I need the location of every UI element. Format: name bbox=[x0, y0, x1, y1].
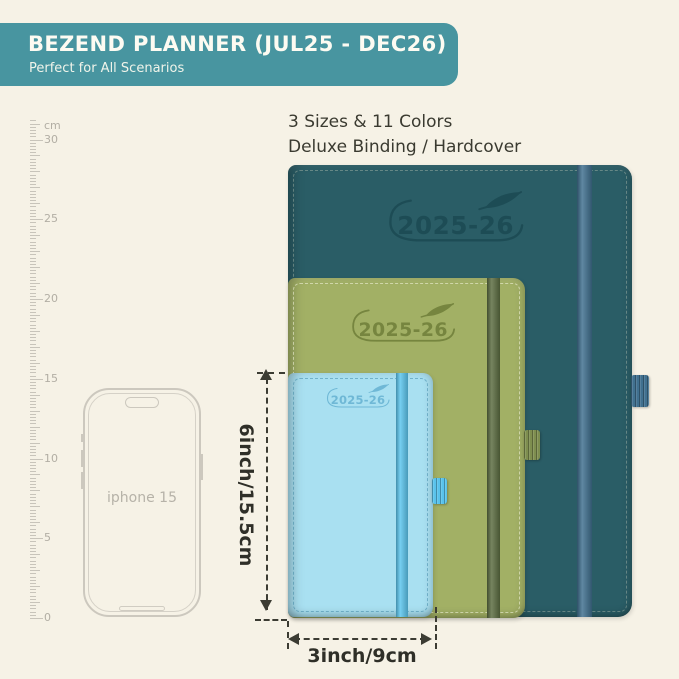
height-dimension-label: 6inch/15.5cm bbox=[235, 424, 257, 567]
ruler-tick bbox=[30, 506, 40, 507]
ruler-tick bbox=[30, 446, 36, 447]
ruler-tick bbox=[30, 602, 40, 603]
ruler-tick bbox=[30, 159, 36, 160]
ruler-tick bbox=[30, 130, 36, 131]
ruler-tick bbox=[30, 353, 36, 354]
ruler-tick bbox=[30, 222, 36, 223]
ruler-tick bbox=[30, 599, 36, 600]
ruler-tick bbox=[30, 226, 36, 227]
elastic-band bbox=[577, 165, 592, 617]
ruler-tick bbox=[30, 133, 36, 134]
ruler-label: 20 bbox=[44, 292, 58, 305]
home-indicator-icon bbox=[119, 606, 165, 611]
year-logo: 2025-26 bbox=[385, 191, 535, 247]
ruler-tick bbox=[30, 235, 40, 236]
ruler-tick bbox=[30, 206, 36, 207]
ruler-tick bbox=[30, 557, 36, 558]
ruler-tick bbox=[30, 580, 36, 581]
ruler-tick bbox=[30, 363, 40, 364]
ruler-tick bbox=[30, 605, 36, 606]
ruler-tick bbox=[30, 194, 36, 195]
ruler-tick bbox=[30, 392, 36, 393]
ruler-tick bbox=[30, 430, 36, 431]
ruler-tick bbox=[30, 254, 36, 255]
ruler-tick bbox=[30, 315, 40, 316]
ruler-tick bbox=[30, 618, 43, 619]
ruler-tick bbox=[30, 548, 36, 549]
ruler-tick bbox=[30, 500, 36, 501]
ruler-tick bbox=[30, 219, 43, 220]
arrow-left-icon bbox=[288, 633, 299, 645]
width-guide-right bbox=[435, 607, 437, 649]
ruler-label: 25 bbox=[44, 212, 58, 225]
ruler-label: 30 bbox=[44, 133, 58, 146]
ruler-tick bbox=[30, 615, 36, 616]
ruler-tick bbox=[30, 302, 36, 303]
ruler-tick bbox=[30, 337, 36, 338]
power-button-icon bbox=[201, 454, 203, 480]
ruler-tick bbox=[30, 321, 36, 322]
product-image: BEZEND PLANNER (JUL25 - DEC26) Perfect f… bbox=[0, 0, 679, 679]
ruler-tick bbox=[30, 251, 40, 252]
ruler-tick bbox=[30, 178, 36, 179]
ruler-tick bbox=[30, 420, 36, 421]
ruler-tick bbox=[30, 328, 36, 329]
ruler-tick bbox=[30, 210, 36, 211]
ruler-unit-label: cm bbox=[44, 119, 61, 132]
ruler-tick bbox=[30, 554, 40, 555]
ruler-tick bbox=[30, 583, 36, 584]
ruler-tick bbox=[30, 331, 40, 332]
ruler-tick bbox=[30, 497, 36, 498]
ruler-tick bbox=[30, 296, 36, 297]
year-text: 2025-26 bbox=[331, 393, 386, 407]
year-logo: 2025-26 bbox=[349, 303, 464, 346]
volume-up-button-icon bbox=[81, 450, 83, 467]
ruler-tick bbox=[30, 273, 36, 274]
ruler-tick bbox=[30, 564, 36, 565]
volume-down-button-icon bbox=[81, 472, 83, 489]
ruler-tick bbox=[30, 439, 36, 440]
iphone-outline: iphone 15 bbox=[83, 388, 201, 617]
ruler-tick bbox=[30, 612, 36, 613]
ruler-tick bbox=[30, 245, 36, 246]
ruler-tick bbox=[30, 181, 36, 182]
pen-loop bbox=[524, 430, 540, 460]
ruler-tick bbox=[30, 519, 36, 520]
ruler-tick bbox=[30, 398, 36, 399]
banner-title: BEZEND PLANNER (JUL25 - DEC26) bbox=[28, 32, 447, 56]
ruler-tick bbox=[30, 436, 36, 437]
ruler-tick bbox=[30, 407, 36, 408]
width-dimension-line bbox=[294, 638, 426, 640]
ruler-tick bbox=[30, 140, 43, 141]
ruler-tick bbox=[30, 318, 36, 319]
ruler-tick bbox=[30, 165, 36, 166]
ruler-tick bbox=[30, 596, 36, 597]
ruler-tick bbox=[30, 168, 36, 169]
ruler-tick bbox=[30, 459, 43, 460]
ruler-tick bbox=[30, 570, 40, 571]
ruler-tick bbox=[30, 592, 36, 593]
ruler-tick bbox=[30, 468, 36, 469]
ruler-tick bbox=[30, 541, 36, 542]
dynamic-island-icon bbox=[125, 397, 159, 408]
ruler-tick bbox=[30, 589, 36, 590]
ruler-tick bbox=[30, 242, 36, 243]
width-dimension-label: 3inch/9cm bbox=[288, 645, 436, 667]
ruler-tick bbox=[30, 522, 40, 523]
ruler-tick bbox=[30, 567, 36, 568]
ruler-tick bbox=[30, 427, 40, 428]
ruler-tick bbox=[30, 293, 36, 294]
year-logo: 2025-26 bbox=[325, 384, 395, 410]
ruler: cm 302520151050 bbox=[0, 0, 70, 679]
ruler-tick bbox=[30, 312, 36, 313]
ruler-tick bbox=[30, 143, 36, 144]
year-text: 2025-26 bbox=[358, 319, 448, 341]
ruler-tick bbox=[30, 136, 36, 137]
ruler-tick bbox=[30, 452, 36, 453]
ruler-tick bbox=[30, 356, 36, 357]
ruler-tick bbox=[30, 484, 36, 485]
arrow-up-icon bbox=[260, 369, 272, 380]
ruler-tick bbox=[30, 184, 36, 185]
ruler-tick bbox=[30, 152, 36, 153]
ruler-tick bbox=[30, 481, 36, 482]
ruler-tick bbox=[30, 433, 36, 434]
ruler-tick bbox=[30, 561, 36, 562]
ruler-tick bbox=[30, 229, 36, 230]
iphone-label: iphone 15 bbox=[85, 490, 199, 506]
ruler-tick bbox=[30, 490, 40, 491]
ruler-tick bbox=[30, 213, 36, 214]
intro-text: 3 Sizes & 11 Colors Deluxe Binding / Har… bbox=[288, 110, 521, 160]
ruler-tick bbox=[30, 423, 36, 424]
ruler-tick bbox=[30, 414, 36, 415]
ruler-tick bbox=[30, 238, 36, 239]
ruler-tick bbox=[30, 449, 36, 450]
height-dimension-line bbox=[266, 378, 268, 610]
ruler-tick bbox=[30, 401, 36, 402]
ruler-tick bbox=[30, 197, 36, 198]
ruler-tick bbox=[30, 277, 36, 278]
ruler-tick bbox=[30, 462, 36, 463]
ruler-tick bbox=[30, 411, 40, 412]
ruler-tick bbox=[30, 283, 40, 284]
ruler-tick bbox=[30, 280, 36, 281]
ruler-tick bbox=[30, 535, 36, 536]
ruler-tick bbox=[30, 513, 36, 514]
elastic-band bbox=[396, 373, 408, 617]
pen-loop bbox=[432, 478, 447, 504]
ruler-tick bbox=[30, 248, 36, 249]
ruler-tick bbox=[30, 395, 40, 396]
ruler-tick bbox=[30, 149, 36, 150]
ruler-tick bbox=[30, 146, 36, 147]
ruler-tick bbox=[30, 369, 36, 370]
ruler-tick bbox=[30, 465, 36, 466]
feather-leaf-icon bbox=[485, 192, 521, 208]
ruler-label: 15 bbox=[44, 372, 58, 385]
ruler-tick bbox=[30, 404, 36, 405]
ruler-tick bbox=[30, 545, 36, 546]
ruler-tick bbox=[30, 525, 36, 526]
year-text: 2025-26 bbox=[397, 211, 514, 240]
ruler-tick bbox=[30, 258, 36, 259]
ruler-tick bbox=[30, 267, 40, 268]
feather-leaf-icon bbox=[372, 385, 389, 393]
ruler-tick bbox=[30, 388, 36, 389]
ruler-tick bbox=[30, 162, 36, 163]
arrow-down-icon bbox=[260, 600, 272, 611]
ruler-tick bbox=[30, 191, 36, 192]
ruler-tick bbox=[30, 474, 40, 475]
ruler-tick bbox=[30, 529, 36, 530]
ruler-tick bbox=[30, 503, 36, 504]
ruler-tick bbox=[30, 478, 36, 479]
elastic-band bbox=[487, 278, 500, 618]
ruler-tick bbox=[30, 443, 40, 444]
ruler-tick bbox=[30, 360, 36, 361]
ruler-tick bbox=[30, 264, 36, 265]
intro-line-binding: Deluxe Binding / Hardcover bbox=[288, 135, 521, 160]
ruler-tick bbox=[30, 305, 36, 306]
ruler-tick bbox=[30, 216, 36, 217]
ruler-tick bbox=[30, 510, 36, 511]
ruler-tick bbox=[30, 586, 40, 587]
ruler-tick bbox=[30, 299, 43, 300]
ruler-tick bbox=[30, 573, 36, 574]
pen-loop bbox=[631, 375, 649, 407]
ruler-label: 0 bbox=[44, 611, 51, 624]
ruler-tick bbox=[30, 538, 43, 539]
ruler-tick bbox=[30, 187, 40, 188]
ruler-tick bbox=[30, 455, 36, 456]
ruler-tick bbox=[30, 175, 36, 176]
ruler-tick bbox=[30, 494, 36, 495]
ruler-tick bbox=[30, 372, 36, 373]
ruler-tick bbox=[30, 347, 40, 348]
arrow-right-icon bbox=[421, 633, 432, 645]
ruler-label: 10 bbox=[44, 452, 58, 465]
ruler-tick bbox=[30, 350, 36, 351]
ruler-tick bbox=[30, 124, 40, 125]
ruler-tick bbox=[30, 200, 36, 201]
ruler-tick bbox=[30, 608, 36, 609]
ruler-tick bbox=[30, 471, 36, 472]
ruler-tick bbox=[30, 487, 36, 488]
ruler-tick bbox=[30, 516, 36, 517]
intro-line-sizes: 3 Sizes & 11 Colors bbox=[288, 110, 521, 135]
ruler-tick bbox=[30, 120, 36, 121]
ruler-tick bbox=[30, 340, 36, 341]
ruler-tick bbox=[30, 344, 36, 345]
ruler-tick bbox=[30, 325, 36, 326]
ruler-tick bbox=[30, 385, 36, 386]
height-extension-bottom bbox=[255, 619, 287, 621]
ruler-tick bbox=[30, 379, 43, 380]
ruler-tick bbox=[30, 376, 36, 377]
ruler-tick bbox=[30, 127, 36, 128]
ruler-tick bbox=[30, 232, 36, 233]
ruler-tick bbox=[30, 171, 40, 172]
ruler-label: 5 bbox=[44, 531, 51, 544]
ruler-tick bbox=[30, 551, 36, 552]
ruler-tick bbox=[30, 155, 40, 156]
ruler-tick bbox=[30, 532, 36, 533]
ruler-tick bbox=[30, 309, 36, 310]
ruler-tick bbox=[30, 289, 36, 290]
ruler-tick bbox=[30, 286, 36, 287]
ruler-tick bbox=[30, 417, 36, 418]
mute-switch-icon bbox=[81, 434, 83, 442]
ruler-tick bbox=[30, 334, 36, 335]
ruler-tick bbox=[30, 261, 36, 262]
ruler-tick bbox=[30, 577, 36, 578]
feather-leaf-icon bbox=[425, 304, 453, 316]
planner-small: 2025-26 bbox=[288, 373, 433, 617]
ruler-tick bbox=[30, 270, 36, 271]
ruler-tick bbox=[30, 203, 40, 204]
ruler-tick bbox=[30, 382, 36, 383]
ruler-tick bbox=[30, 366, 36, 367]
